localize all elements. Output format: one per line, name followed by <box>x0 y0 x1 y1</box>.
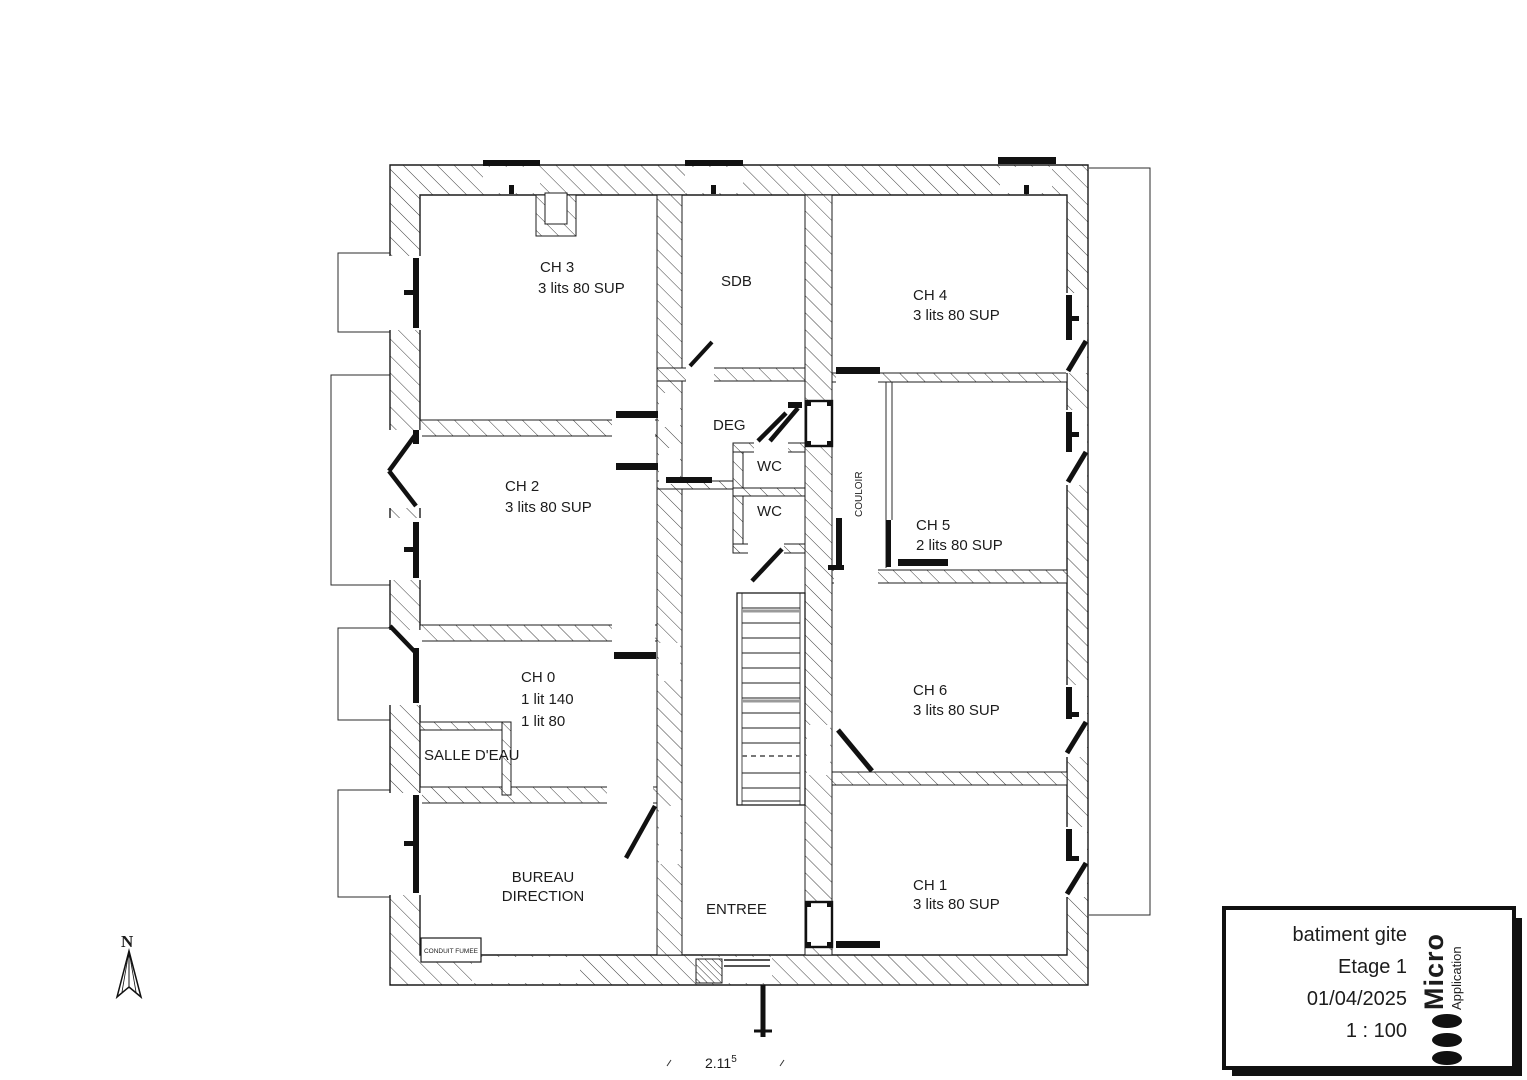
room-label-ch0: CH 0 <box>521 669 555 686</box>
window-top-sdb <box>685 160 743 166</box>
room-label-ch2: CH 2 <box>505 478 539 495</box>
door-ch0 <box>614 652 656 659</box>
radiator <box>696 959 722 983</box>
room-label-ch3: CH 3 <box>540 259 574 276</box>
window-top-ch4 <box>998 157 1056 164</box>
door-ch3 <box>616 411 658 418</box>
room-label-entree: ENTREE <box>706 901 767 918</box>
title-block: batiment gite Etage 1 01/04/2025 1 : 100… <box>1224 908 1522 1076</box>
room-label-sdb: SDB <box>721 273 752 290</box>
room-label-ch1: CH 1 <box>913 877 947 894</box>
brand-name: Micro <box>1419 933 1449 1010</box>
room-label-bureau: BUREAU <box>512 869 575 886</box>
door-passage <box>666 477 712 483</box>
sheet-label: Etage 1 <box>1338 956 1407 978</box>
scale-label: 1 : 100 <box>1346 1020 1407 1042</box>
wall-salle-eau-north <box>420 722 510 730</box>
room-label-salle-eau: SALLE D'EAU <box>424 747 519 764</box>
floor-plan-canvas: CONDUIT FUMEE CH 3 3 lits 80 SUP SDB CH … <box>0 0 1527 1080</box>
room-label-couloir: COULOIR <box>854 471 865 517</box>
door-ch5-leaf <box>886 520 891 567</box>
door-ch2 <box>616 463 658 470</box>
drawing-sheet: CONDUIT FUMEE CH 3 3 lits 80 SUP SDB CH … <box>0 0 1527 1080</box>
room-label-wc-north: WC <box>757 458 782 475</box>
room-label-direction: DIRECTION <box>502 888 585 905</box>
room-label-ch5: CH 5 <box>916 517 950 534</box>
window-ch0 <box>413 648 419 703</box>
door-ch4 <box>836 367 880 374</box>
wall-center-east <box>805 195 832 955</box>
room-detail-ch0-1: 1 lit 140 <box>521 691 574 708</box>
wall-wc-mid <box>733 488 805 496</box>
chimney-niche <box>536 193 576 236</box>
window-bureau <box>413 795 419 893</box>
window-top-ch3 <box>483 160 540 166</box>
brand-ellipse <box>1432 1014 1462 1028</box>
window-ch3 <box>413 258 419 328</box>
room-detail-ch6: 3 lits 80 SUP <box>913 702 1000 719</box>
brand-sub: Application <box>1449 946 1464 1010</box>
room-detail-ch4: 3 lits 80 SUP <box>913 307 1000 324</box>
door-ch1 <box>836 941 880 948</box>
room-label-ch4: CH 4 <box>913 287 947 304</box>
room-detail-ch3: 3 lits 80 SUP <box>538 280 625 297</box>
room-detail-ch1: 3 lits 80 SUP <box>913 896 1000 913</box>
door-couloir <box>836 518 842 568</box>
window-ch2 <box>413 522 419 578</box>
room-label-ch6: CH 6 <box>913 682 947 699</box>
room-detail-ch5: 2 lits 80 SUP <box>916 537 1003 554</box>
flue-box: CONDUIT FUMEE <box>421 938 481 962</box>
staircase <box>737 593 805 805</box>
room-label-wc-south: WC <box>757 503 782 520</box>
room-detail-ch0-2: 1 lit 80 <box>521 713 565 730</box>
room-label-deg: DEG <box>713 417 746 434</box>
brand-ellipse <box>1432 1033 1462 1047</box>
brand-ellipse <box>1432 1051 1462 1065</box>
door-ch5 <box>898 559 948 566</box>
room-detail-ch2: 3 lits 80 SUP <box>505 499 592 516</box>
wall-sdb-deg <box>657 368 805 381</box>
project-title: batiment gite <box>1292 924 1407 946</box>
date-label: 01/04/2025 <box>1307 988 1407 1010</box>
flue-label: CONDUIT FUMEE <box>424 948 479 955</box>
wall-ch6-ch1 <box>832 772 1067 785</box>
north-label: N <box>121 932 134 951</box>
wall-wc-west <box>733 443 743 552</box>
